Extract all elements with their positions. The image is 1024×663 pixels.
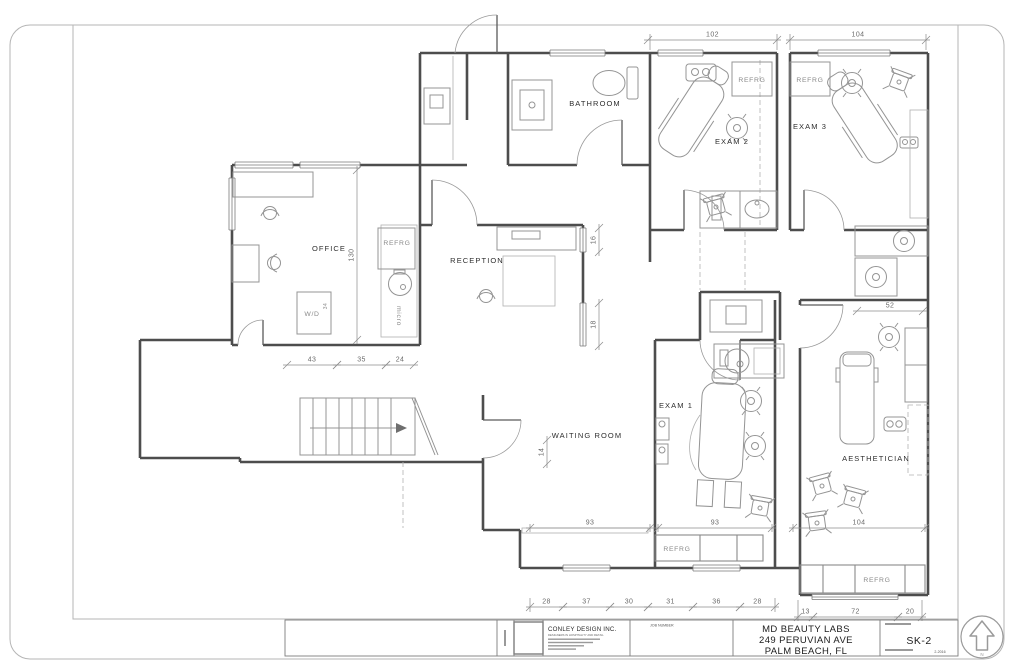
aesthetician-chair-3 xyxy=(802,509,831,536)
firm-address-line xyxy=(548,642,593,643)
aesthetician-chair-2 xyxy=(837,484,868,514)
exam1-side-chair xyxy=(745,494,775,522)
north-label: N xyxy=(980,652,983,657)
door-arc xyxy=(455,15,497,53)
exam2-equipment xyxy=(686,64,716,81)
door-arc xyxy=(800,305,843,348)
office-desk-2 xyxy=(232,245,259,282)
dimensions-layer: 1021041301618144335249393521042837303136… xyxy=(283,32,930,622)
dimension-label: 30 xyxy=(625,599,634,606)
aesthetician-counter xyxy=(905,328,927,402)
dimension-label: 93 xyxy=(711,520,720,527)
office-desk xyxy=(233,172,313,197)
dimension-35: 35 xyxy=(333,357,390,370)
dimension-label: 36 xyxy=(712,599,721,606)
dimension-label: 72 xyxy=(851,609,860,616)
door-arc xyxy=(238,320,263,345)
kitchen-sink-icon xyxy=(389,270,412,296)
dimension-label: 43 xyxy=(308,357,317,364)
office-chair-2 xyxy=(268,254,281,272)
room-label-office: OFFICE xyxy=(312,244,346,253)
dimension-31: 31 xyxy=(644,599,697,612)
refrigerator-box xyxy=(378,228,415,269)
dimension-14: 14 xyxy=(539,436,552,468)
window xyxy=(235,162,293,169)
window xyxy=(693,565,740,572)
room-label-waiting-room: WAITING ROOM xyxy=(552,431,622,440)
dimension-label: 13 xyxy=(801,609,810,616)
firm-phone-line xyxy=(548,648,576,649)
title-block: CONLEY DESIGN INC. DESIGNERS IN HOSPITAL… xyxy=(285,620,958,657)
waiting-room-sill xyxy=(522,528,648,533)
window xyxy=(580,228,587,252)
dimension-label: 31 xyxy=(666,599,675,606)
dimension-label: 14 xyxy=(539,448,546,457)
dimension-label: 24 xyxy=(396,357,405,364)
dimension-52: 52 xyxy=(853,303,927,316)
dimension-102: 102 xyxy=(644,32,781,45)
firm-logo-box xyxy=(514,622,543,654)
dimension-label: 18 xyxy=(591,320,598,329)
exam3-counter xyxy=(910,110,928,218)
room-label-exam-2: EXAM 2 xyxy=(715,137,749,146)
exam1-stool-icon-2 xyxy=(745,432,766,460)
window xyxy=(658,50,703,57)
stair-direction-arrow xyxy=(396,423,407,433)
sheet-number: SK-2 xyxy=(906,635,931,647)
firm-address-line xyxy=(548,645,584,646)
aesthetician-outlet xyxy=(884,417,906,431)
dimension-18: 18 xyxy=(591,299,604,350)
fixture-label-refrg-kitchenette: REFRG xyxy=(383,240,410,247)
dimension-30: 30 xyxy=(606,599,652,612)
exam1-equipment xyxy=(656,418,669,464)
exam2-chair xyxy=(651,58,740,164)
walls xyxy=(140,53,928,595)
fixture-label-microwave: micro xyxy=(395,306,402,326)
dimension-label: 93 xyxy=(586,520,595,527)
dimension-label: 28 xyxy=(542,599,551,606)
fixture-label-refrg-exam3: REFRG xyxy=(796,77,823,84)
dimension-label: 37 xyxy=(582,599,591,606)
exam1-chair xyxy=(696,368,747,508)
drawn-by-bar xyxy=(885,649,913,651)
exam2-side-chair xyxy=(700,192,731,222)
reception-chair xyxy=(477,290,495,303)
room-label-reception: RECEPTION xyxy=(450,256,504,265)
title-block-side-bar xyxy=(504,630,506,646)
bathroom-vanity xyxy=(512,80,552,130)
sheet-number-label-bar xyxy=(885,623,911,625)
sheet-date: 2-2016 xyxy=(934,650,945,654)
project-address-1: 249 PERUVIAN AVE xyxy=(759,635,853,646)
window xyxy=(300,162,360,169)
fixture-label-washer-dryer: W/D xyxy=(304,311,319,318)
firm-tagline: DESIGNERS IN HOSPITALITY AND RETAIL xyxy=(548,633,604,637)
dimension-label: 16 xyxy=(591,236,598,245)
exam3-outlet xyxy=(900,137,918,148)
window xyxy=(818,50,890,57)
dimension-label: 104 xyxy=(852,32,865,39)
dimension-16: 16 xyxy=(591,224,604,256)
room-label-exam-1: EXAM 1 xyxy=(659,401,693,410)
dimension-label: 104 xyxy=(853,520,866,527)
window xyxy=(580,303,587,346)
dimension-28: 28 xyxy=(736,599,779,612)
floor-plan-canvas: OFFICERECEPTIONBATHROOMEXAM 2EXAM 3EXAM … xyxy=(0,0,1024,663)
room-label-aesthetician: AESTHETICIAN xyxy=(842,454,910,463)
dimension-label: 130 xyxy=(349,249,356,262)
closet-fixture xyxy=(424,56,453,160)
corridor-sink-counter xyxy=(855,226,928,296)
dimension-130: 130 xyxy=(349,166,362,344)
stairs xyxy=(300,398,438,455)
window xyxy=(550,50,605,57)
dimension-label: 102 xyxy=(706,32,719,39)
room-label-bathroom: BATHROOM xyxy=(569,99,621,108)
fixture-label-refrg-exam1: REFRG xyxy=(663,546,690,553)
fixture-label-wd-dim: 34 xyxy=(323,303,329,309)
dimension-93: 93 xyxy=(526,520,654,533)
door-arc xyxy=(483,420,521,458)
dimension-24: 24 xyxy=(382,357,418,370)
window xyxy=(563,565,610,572)
door-arc xyxy=(577,120,622,165)
project-address-2: PALM BEACH, FL xyxy=(765,646,848,657)
dimension-label: 35 xyxy=(357,357,366,364)
dimension-37: 37 xyxy=(559,599,614,612)
exam3-side-chair xyxy=(883,66,916,97)
firm-name: CONLEY DESIGN INC. xyxy=(548,626,617,633)
north-arrow-icon: N xyxy=(961,616,1003,658)
aesthetician-stool-icon xyxy=(879,323,900,351)
dimension-43: 43 xyxy=(283,357,341,370)
dimension-36: 36 xyxy=(689,599,744,612)
dimension-93: 93 xyxy=(654,520,776,533)
exam1-stool-icon xyxy=(741,387,762,415)
reception-keyboard xyxy=(512,231,540,239)
door-arc xyxy=(804,190,844,230)
reception-desk xyxy=(503,256,555,306)
massage-table xyxy=(836,352,878,444)
window xyxy=(229,178,236,230)
fixture-label-refrg-exam2: REFRG xyxy=(738,77,765,84)
room-label-exam-3: EXAM 3 xyxy=(793,122,827,131)
aesthetician-chair xyxy=(806,471,837,501)
dimension-label: 52 xyxy=(886,303,895,310)
window xyxy=(812,594,898,600)
door-arc xyxy=(432,180,477,225)
fixture-label-refrg-aesthetician: REFRG xyxy=(863,577,890,584)
core-sink-counter xyxy=(714,344,784,378)
dimension-label: 20 xyxy=(906,609,915,616)
labels-layer: OFFICERECEPTIONBATHROOMEXAM 2EXAM 3EXAM … xyxy=(304,77,910,584)
windows xyxy=(229,50,899,601)
dimension-104: 104 xyxy=(786,32,930,45)
job-number-label: JOB NUMBER xyxy=(650,624,674,628)
dimension-label: 28 xyxy=(753,599,762,606)
floor-plan-sheet: OFFICERECEPTIONBATHROOMEXAM 2EXAM 3EXAM … xyxy=(0,0,1024,663)
mech-room-equipment xyxy=(710,300,762,332)
office-chair xyxy=(261,207,279,220)
toilet-icon xyxy=(593,67,638,99)
project-name: MD BEAUTY LABS xyxy=(762,624,850,635)
firm-address-line xyxy=(548,639,600,640)
